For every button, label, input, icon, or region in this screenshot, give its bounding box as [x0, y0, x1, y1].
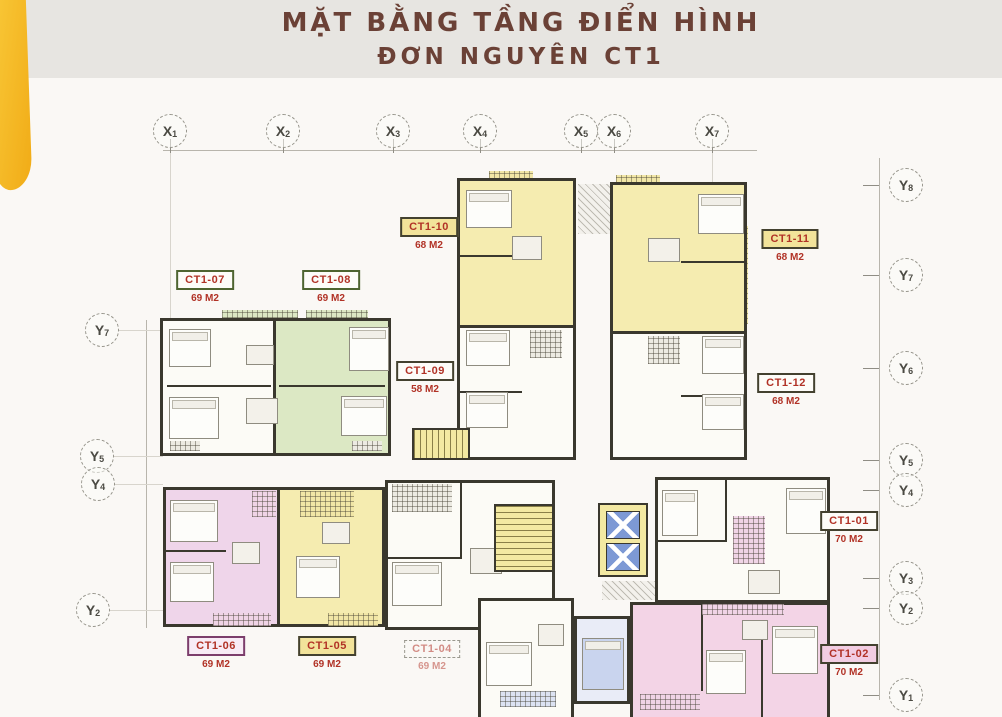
dimension-tick — [863, 368, 879, 369]
right-dimension-line — [879, 158, 880, 700]
bathroom-hatch — [300, 491, 354, 517]
grid-marker-x6: X6 — [597, 114, 631, 148]
grid-marker-x5: X5 — [564, 114, 598, 148]
grid-marker-x1: X1 — [153, 114, 187, 148]
grid-label: X — [163, 123, 172, 139]
interior-wall — [701, 605, 703, 691]
interior-wall — [166, 550, 226, 552]
bathroom-hatch — [392, 484, 452, 512]
bed — [582, 638, 624, 690]
grid-sub: 3 — [908, 576, 913, 586]
grid-label: Y — [90, 448, 99, 464]
interior-wall — [460, 325, 573, 328]
link-bridge-hatch — [578, 184, 610, 234]
grid-sub: 4 — [482, 129, 487, 139]
interior-wall — [725, 480, 727, 542]
grid-sub: 4 — [908, 488, 913, 498]
grid-sub: 1 — [908, 693, 913, 703]
apartment-id: CT1-11 — [761, 229, 818, 249]
balcony-hatch — [500, 691, 556, 707]
table — [232, 542, 260, 564]
grid-marker-y4-left: Y4 — [81, 467, 115, 501]
bed — [169, 397, 219, 439]
grid-line-x7 — [712, 153, 713, 184]
interior-wall — [613, 331, 744, 334]
interior-wall — [277, 490, 280, 624]
apartment-id: CT1-05 — [298, 636, 356, 656]
interior-wall — [279, 385, 385, 387]
grid-sub: 5 — [99, 454, 104, 464]
grid-marker-y6-right: Y6 — [889, 351, 923, 385]
apartment-id: CT1-06 — [187, 636, 245, 656]
bed — [466, 190, 512, 228]
bathroom-hatch — [252, 491, 276, 517]
grid-label: Y — [899, 452, 908, 468]
apartment-area: 68 M2 — [757, 396, 815, 407]
apartment-label-ct1-11: CT1-11 68 M2 — [761, 229, 818, 263]
dimension-tick — [863, 608, 879, 609]
top-dimension-line — [163, 150, 757, 151]
grid-label: Y — [95, 322, 104, 338]
apartment-area: 69 M2 — [187, 659, 245, 670]
apartment-area: 68 M2 — [400, 240, 458, 251]
grid-sub: 7 — [104, 328, 109, 338]
grid-marker-x7: X7 — [695, 114, 729, 148]
bathroom-hatch — [530, 330, 562, 358]
table — [512, 236, 542, 260]
stair-core — [412, 428, 470, 460]
apartment-label-ct1-07: CT1-07 69 M2 — [176, 270, 234, 304]
grid-line-y4 — [114, 484, 163, 485]
grid-sub: 4 — [100, 482, 105, 492]
bed — [169, 329, 211, 367]
apartment-label-ct1-04: CT1-04 69 M2 — [404, 639, 460, 672]
balcony-hatch — [328, 613, 378, 626]
grid-marker-x2: X2 — [266, 114, 300, 148]
apartment-area: 58 M2 — [396, 384, 454, 395]
dimension-tick — [863, 275, 879, 276]
grid-marker-y7-left: Y7 — [85, 313, 119, 347]
apartment-id: CT1-10 — [400, 217, 458, 237]
floor-plan-page: MẶT BẰNG TẦNG ĐIỂN HÌNH ĐƠN NGUYÊN CT1 X… — [0, 0, 1002, 717]
grid-label: X — [386, 123, 395, 139]
grid-label: Y — [899, 570, 908, 586]
bed — [486, 642, 532, 686]
apartment-id: CT1-08 — [302, 270, 360, 290]
dimension-tick — [863, 578, 879, 579]
grid-label: Y — [899, 687, 908, 703]
apartment-id: CT1-01 — [820, 511, 878, 531]
bed — [349, 327, 389, 371]
apartment-label-ct1-09: CT1-09 58 M2 — [396, 361, 454, 395]
grid-marker-y4-right: Y4 — [889, 473, 923, 507]
interior-wall — [761, 633, 763, 717]
grid-label: X — [574, 123, 583, 139]
grid-sub: 7 — [714, 129, 719, 139]
grid-sub: 5 — [583, 129, 588, 139]
wardrobe-hatch — [352, 441, 382, 451]
grid-label: Y — [899, 482, 908, 498]
grid-marker-y2-left: Y2 — [76, 593, 110, 627]
interior-wall — [388, 557, 462, 559]
grid-marker-x3: X3 — [376, 114, 410, 148]
interior-wall — [167, 385, 271, 387]
apartment-area: 70 M2 — [820, 667, 878, 678]
interior-wall — [460, 483, 462, 559]
grid-marker-y3-right: Y3 — [889, 561, 923, 595]
grid-label: X — [473, 123, 482, 139]
grid-sub: 6 — [908, 366, 913, 376]
interior-wall — [681, 261, 744, 263]
table — [648, 238, 680, 262]
apartment-id: CT1-04 — [404, 640, 460, 658]
grid-label: Y — [899, 600, 908, 616]
bed — [466, 330, 510, 366]
bed — [698, 194, 744, 234]
grid-label: Y — [91, 476, 100, 492]
apartment-label-ct1-05: CT1-05 69 M2 — [298, 636, 356, 670]
apartment-label-ct1-02: CT1-02 70 M2 — [820, 644, 878, 678]
table — [742, 620, 768, 640]
apartment-label-ct1-06: CT1-06 69 M2 — [187, 636, 245, 670]
bed — [662, 490, 698, 536]
bed — [702, 394, 744, 430]
grid-marker-x4: X4 — [463, 114, 497, 148]
grid-label: Y — [899, 177, 908, 193]
grid-marker-y2-right: Y2 — [889, 591, 923, 625]
apartment-label-ct1-08: CT1-08 69 M2 — [302, 270, 360, 304]
elevator-car — [606, 543, 640, 571]
dimension-tick — [863, 460, 879, 461]
apartment-area: 69 M2 — [404, 661, 460, 672]
grid-sub: 7 — [908, 273, 913, 283]
grid-line-y2 — [109, 610, 163, 611]
bed — [170, 562, 214, 602]
grid-label: Y — [899, 267, 908, 283]
apartment-id: CT1-09 — [396, 361, 454, 381]
apartment-area: 69 M2 — [298, 659, 356, 670]
bed — [296, 556, 340, 598]
grid-sub: 2 — [908, 606, 913, 616]
apartment-label-ct1-12: CT1-12 68 M2 — [757, 373, 815, 407]
table — [748, 570, 780, 594]
bed — [706, 650, 746, 694]
bed — [341, 396, 387, 436]
bed — [772, 626, 818, 674]
grid-line-y5 — [113, 456, 163, 457]
grid-label: Y — [86, 602, 95, 618]
apartment-id: CT1-12 — [757, 373, 815, 393]
page-title-line2: ĐƠN NGUYÊN CT1 — [0, 44, 1002, 70]
apartment-area: 69 M2 — [302, 293, 360, 304]
wardrobe-hatch — [170, 441, 200, 451]
bathroom-hatch — [733, 516, 765, 564]
apartment-area: 70 M2 — [820, 534, 878, 545]
grid-sub: 1 — [172, 129, 177, 139]
dimension-tick — [863, 695, 879, 696]
stair-core — [494, 504, 554, 572]
apartment-label-ct1-10: CT1-10 68 M2 — [400, 217, 458, 251]
grid-sub: 3 — [395, 129, 400, 139]
bed — [466, 392, 508, 428]
interior-wall — [273, 321, 276, 453]
grid-label: X — [705, 123, 714, 139]
grid-label: Y — [899, 360, 908, 376]
apartment-label-ct1-01: CT1-01 70 M2 — [820, 511, 878, 545]
grid-marker-y8-right: Y8 — [889, 168, 923, 202]
grid-line-x1 — [170, 153, 171, 318]
grid-label: X — [607, 123, 616, 139]
left-dimension-line — [146, 320, 147, 628]
dimension-tick — [863, 490, 879, 491]
bed — [170, 500, 218, 542]
dimension-tick — [863, 185, 879, 186]
apartment-id: CT1-07 — [176, 270, 234, 290]
page-title-line1: MẶT BẰNG TẦNG ĐIỂN HÌNH — [0, 8, 1002, 38]
bathroom-hatch — [648, 336, 680, 364]
table — [322, 522, 350, 544]
balcony-hatch — [213, 613, 271, 626]
bed — [392, 562, 442, 606]
table — [538, 624, 564, 646]
bathroom-hatch — [702, 604, 784, 615]
grid-line-y7 — [118, 330, 163, 331]
apartment-area: 69 M2 — [176, 293, 234, 304]
grid-marker-y7-right: Y7 — [889, 258, 923, 292]
balcony-hatch — [640, 694, 700, 710]
grid-sub: 5 — [908, 458, 913, 468]
grid-marker-y1-right: Y1 — [889, 678, 923, 712]
apartment-id: CT1-02 — [820, 644, 878, 664]
table — [246, 398, 278, 424]
elevator-car — [606, 511, 640, 539]
grid-sub: 8 — [908, 183, 913, 193]
apartment-area: 68 M2 — [761, 252, 818, 263]
grid-sub: 6 — [616, 129, 621, 139]
table — [246, 345, 274, 365]
grid-sub: 2 — [95, 608, 100, 618]
bed — [702, 336, 744, 374]
grid-label: X — [276, 123, 285, 139]
grid-marker-y5-right: Y5 — [889, 443, 923, 477]
interior-wall — [658, 540, 727, 542]
grid-sub: 2 — [285, 129, 290, 139]
